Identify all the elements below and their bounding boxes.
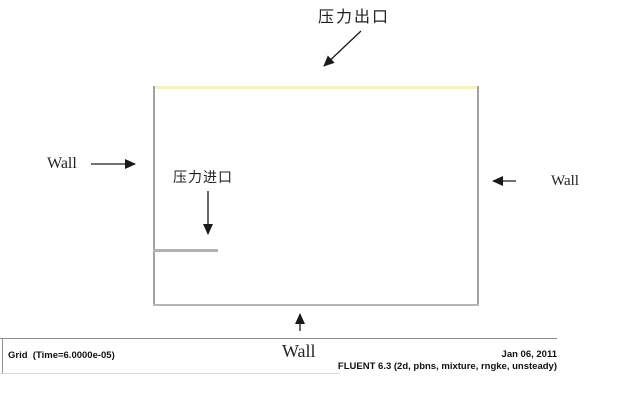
fluent-graphics-window: 压力出口 压力进口 Wall Wall Wall Grid (Time=6.00… [0, 0, 640, 400]
pressure-outlet-arrow-icon [324, 31, 361, 66]
plot-title: Grid (Time=6.0000e-05) [8, 350, 115, 361]
pressure-outlet-label: 压力出口 [318, 3, 390, 27]
wall-bottom-label: Wall [282, 341, 316, 362]
wall-right-label: Wall [551, 173, 579, 190]
status-bar-bottom-line [0, 373, 340, 374]
wall-left-label: Wall [47, 155, 77, 173]
pressure-inlet-label: 压力进口 [173, 167, 233, 187]
status-bar-left-line [2, 338, 3, 374]
caption-right-block: Jan 06, 2011 FLUENT 6.3 (2d, pbns, mixtu… [338, 349, 557, 372]
status-bar-top-line [0, 338, 557, 339]
caption-date: Jan 06, 2011 [338, 349, 557, 361]
annotation-arrows [0, 0, 640, 400]
caption-solver-info: FLUENT 6.3 (2d, pbns, mixture, rngke, un… [338, 361, 557, 373]
